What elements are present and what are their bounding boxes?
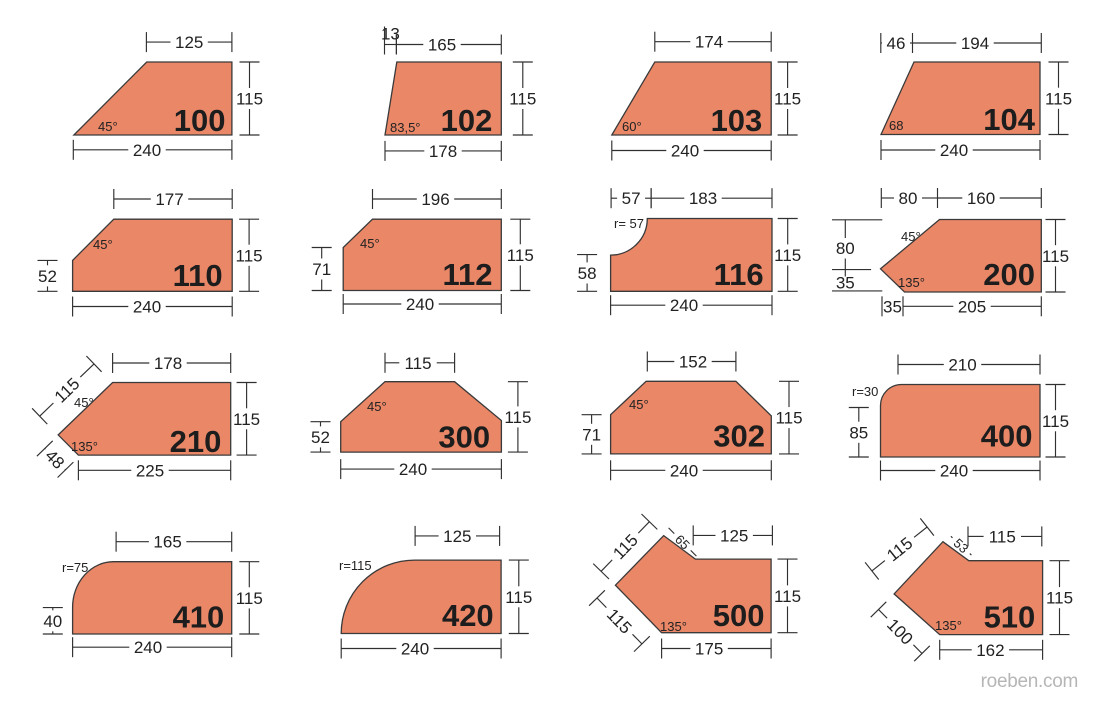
svg-text:35: 35 — [883, 297, 902, 316]
svg-text:115: 115 — [236, 589, 263, 608]
svg-text:115: 115 — [233, 410, 260, 429]
svg-text:115: 115 — [507, 246, 534, 265]
svg-text:135°: 135° — [935, 618, 962, 633]
svg-text:210: 210 — [170, 424, 222, 459]
svg-text:183: 183 — [689, 189, 717, 208]
svg-text:115: 115 — [1046, 589, 1073, 608]
svg-text:roeben.com: roeben.com — [981, 671, 1078, 692]
svg-text:45°: 45° — [629, 397, 649, 412]
svg-text:165: 165 — [428, 36, 456, 55]
svg-text:152: 152 — [679, 353, 707, 372]
svg-text:r=115: r=115 — [339, 558, 372, 573]
svg-text:302: 302 — [713, 418, 765, 453]
svg-text:103: 103 — [711, 103, 763, 138]
svg-text:300: 300 — [438, 420, 490, 455]
svg-text:57: 57 — [622, 189, 641, 208]
svg-text:100: 100 — [174, 103, 226, 138]
svg-text:125: 125 — [443, 527, 471, 546]
svg-text:240: 240 — [133, 141, 161, 160]
svg-text:115: 115 — [504, 408, 531, 427]
svg-text:68: 68 — [889, 118, 903, 133]
svg-text:35: 35 — [836, 274, 855, 293]
svg-text:410: 410 — [173, 599, 225, 634]
svg-text:r= 57: r= 57 — [614, 216, 644, 231]
svg-text:125: 125 — [720, 526, 748, 545]
svg-text:240: 240 — [134, 638, 162, 657]
svg-text:510: 510 — [984, 599, 1036, 634]
svg-text:115: 115 — [1042, 412, 1069, 431]
svg-text:165: 165 — [153, 533, 181, 552]
svg-text:115: 115 — [1045, 89, 1072, 108]
svg-text:80: 80 — [899, 189, 918, 208]
svg-text:110: 110 — [173, 258, 223, 293]
svg-text:45°: 45° — [901, 229, 921, 244]
svg-text:115: 115 — [1042, 247, 1069, 266]
svg-text:104: 104 — [983, 102, 1035, 137]
svg-text:178: 178 — [154, 354, 182, 373]
svg-text:45°: 45° — [360, 236, 380, 251]
svg-text:240: 240 — [399, 460, 427, 479]
svg-text:115: 115 — [989, 527, 1016, 546]
svg-text:115: 115 — [774, 246, 801, 265]
svg-text:58: 58 — [578, 264, 597, 283]
svg-text:r=30: r=30 — [852, 384, 878, 399]
svg-text:45°: 45° — [98, 119, 118, 134]
svg-text:225: 225 — [136, 461, 164, 480]
svg-text:160: 160 — [967, 189, 995, 208]
svg-text:45°: 45° — [367, 399, 387, 414]
svg-text:r=75: r=75 — [62, 560, 88, 575]
svg-text:60°: 60° — [622, 119, 642, 134]
svg-text:46: 46 — [887, 34, 906, 53]
svg-text:240: 240 — [940, 462, 968, 481]
svg-text:71: 71 — [582, 425, 601, 444]
svg-text:115: 115 — [505, 588, 532, 607]
svg-text:102: 102 — [441, 103, 493, 138]
svg-text:196: 196 — [421, 190, 449, 209]
svg-text:177: 177 — [155, 190, 183, 209]
svg-text:112: 112 — [442, 257, 492, 292]
svg-text:115: 115 — [236, 246, 263, 265]
svg-text:115: 115 — [509, 90, 536, 109]
svg-text:115: 115 — [236, 90, 263, 109]
svg-text:500: 500 — [713, 598, 765, 633]
svg-text:205: 205 — [958, 297, 986, 316]
svg-text:175: 175 — [695, 640, 723, 659]
svg-text:162: 162 — [976, 641, 1004, 660]
svg-text:135°: 135° — [660, 619, 687, 634]
svg-text:115: 115 — [774, 587, 801, 606]
svg-text:115: 115 — [775, 409, 802, 428]
svg-text:125: 125 — [175, 33, 203, 52]
svg-text:178: 178 — [429, 142, 457, 161]
svg-text:52: 52 — [38, 267, 57, 286]
svg-text:45°: 45° — [93, 237, 113, 252]
svg-text:240: 240 — [406, 295, 434, 314]
svg-text:420: 420 — [442, 598, 494, 633]
svg-text:13: 13 — [381, 25, 400, 44]
svg-text:115: 115 — [774, 90, 801, 109]
svg-text:200: 200 — [983, 257, 1035, 292]
svg-text:52: 52 — [311, 428, 330, 447]
svg-text:116: 116 — [714, 257, 764, 292]
svg-text:40: 40 — [43, 612, 62, 631]
svg-text:194: 194 — [961, 34, 989, 53]
svg-text:240: 240 — [940, 141, 968, 160]
svg-text:85: 85 — [849, 423, 868, 442]
svg-text:135°: 135° — [898, 275, 925, 290]
svg-text:174: 174 — [695, 33, 723, 52]
svg-text:135°: 135° — [71, 439, 98, 454]
svg-text:71: 71 — [312, 260, 331, 279]
svg-text:240: 240 — [401, 640, 429, 659]
svg-text:240: 240 — [671, 142, 699, 161]
svg-text:115: 115 — [404, 354, 431, 373]
svg-text:240: 240 — [133, 298, 161, 317]
svg-text:240: 240 — [670, 296, 698, 315]
svg-text:45°: 45° — [74, 395, 94, 410]
svg-text:400: 400 — [981, 418, 1033, 453]
svg-text:240: 240 — [670, 461, 698, 480]
svg-text:83,5°: 83,5° — [390, 120, 421, 135]
svg-text:80: 80 — [836, 239, 855, 258]
svg-text:210: 210 — [948, 356, 976, 375]
